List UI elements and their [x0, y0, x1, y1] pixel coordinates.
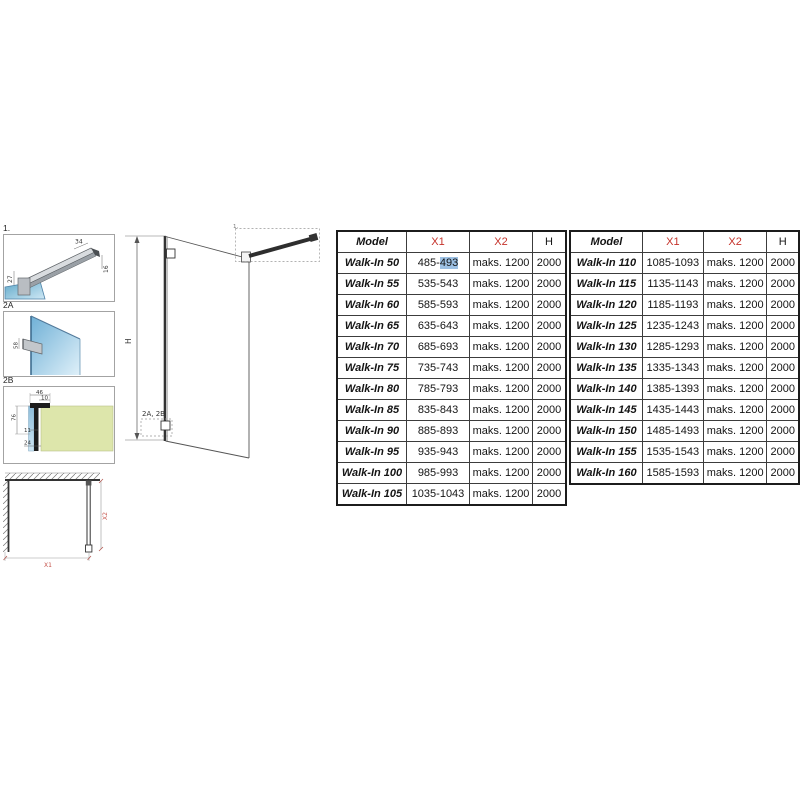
cell-x2: maks. 1200 — [703, 274, 767, 295]
cell-model: Walk-In 140 — [570, 379, 642, 400]
dim-10: 10 — [41, 396, 48, 402]
cell-x2: maks. 1200 — [470, 253, 533, 274]
cell-x2: maks. 1200 — [703, 337, 767, 358]
support-bar-drawing: 34 16 27 — [4, 235, 114, 301]
cell-model: Walk-In 120 — [570, 295, 642, 316]
glass-panel-plan — [87, 481, 90, 547]
cell-model: Walk-In 75 — [337, 358, 407, 379]
dim-34: 34 — [75, 239, 83, 246]
cell-h: 2000 — [533, 379, 567, 400]
spec-row: Walk-In 80785-793maks. 12002000 — [337, 379, 566, 400]
top-bracket — [167, 249, 176, 258]
column-header-model: Model — [337, 231, 407, 253]
cell-model: Walk-In 60 — [337, 295, 407, 316]
spec-row: Walk-In 50485-493maks. 12002000 — [337, 253, 566, 274]
cell-model: Walk-In 65 — [337, 316, 407, 337]
cell-x2: maks. 1200 — [470, 400, 533, 421]
cell-model: Walk-In 70 — [337, 337, 407, 358]
column-header-h: H — [767, 231, 799, 253]
cell-x1: 1185-1193 — [642, 295, 703, 316]
cell-x2: maks. 1200 — [470, 358, 533, 379]
cell-x2: maks. 1200 — [470, 484, 533, 506]
cell-x1: 685-693 — [407, 337, 470, 358]
cell-x1: 1285-1293 — [642, 337, 703, 358]
cell-x1: 1385-1393 — [642, 379, 703, 400]
cell-model: Walk-In 130 — [570, 337, 642, 358]
column-header-x1: X1 — [642, 231, 703, 253]
cell-h: 2000 — [767, 337, 799, 358]
spec-row: Walk-In 1451435-1443maks. 12002000 — [570, 400, 799, 421]
arrow-down — [135, 433, 140, 440]
cell-x2: maks. 1200 — [470, 442, 533, 463]
spec-row: Walk-In 1301285-1293maks. 12002000 — [570, 337, 799, 358]
cell-x1: 1235-1243 — [642, 316, 703, 337]
dim-24: 24 — [24, 441, 31, 447]
cell-x1: 1585-1593 — [642, 463, 703, 485]
cell-h: 2000 — [767, 421, 799, 442]
detail-2a-box: 58 — [3, 311, 115, 377]
cell-x1: 485-493 — [407, 253, 470, 274]
cell-h: 2000 — [767, 358, 799, 379]
cell-x1: 535-543 — [407, 274, 470, 295]
cell-x1: 735-743 — [407, 358, 470, 379]
elevation-drawing: H 1. 2A, 2B — [120, 222, 332, 472]
spec-row: Walk-In 1051035-1043maks. 12002000 — [337, 484, 566, 506]
height-dim-label: H — [124, 338, 133, 344]
spec-row: Walk-In 1401385-1393maks. 12002000 — [570, 379, 799, 400]
cell-model: Walk-In 155 — [570, 442, 642, 463]
detail-2b-box: 46 10 76 11 24 — [3, 386, 115, 464]
cell-x1: 1135-1143 — [642, 274, 703, 295]
cell-x1: 1335-1343 — [642, 358, 703, 379]
cell-model: Walk-In 105 — [337, 484, 407, 506]
spec-row: Walk-In 1101085-1093maks. 12002000 — [570, 253, 799, 274]
spec-row: Walk-In 1351335-1343maks. 12002000 — [570, 358, 799, 379]
cell-x2: maks. 1200 — [703, 358, 767, 379]
detail-2b-label: 2B — [3, 376, 115, 385]
cell-x2: maks. 1200 — [470, 337, 533, 358]
cell-h: 2000 — [533, 358, 567, 379]
cell-x1: 885-893 — [407, 421, 470, 442]
cell-model: Walk-In 115 — [570, 274, 642, 295]
cell-x1: 785-793 — [407, 379, 470, 400]
cell-x1: 1435-1443 — [642, 400, 703, 421]
spec-row: Walk-In 1551535-1543maks. 12002000 — [570, 442, 799, 463]
cell-h: 2000 — [767, 463, 799, 485]
cell-x1: 985-993 — [407, 463, 470, 484]
cell-x2: maks. 1200 — [703, 442, 767, 463]
cell-model: Walk-In 145 — [570, 400, 642, 421]
detail-1-box: 34 16 27 — [3, 234, 115, 302]
wall-profile-plan — [86, 481, 92, 486]
column-header-model: Model — [570, 231, 642, 253]
cell-h: 2000 — [767, 400, 799, 421]
cell-h: 2000 — [533, 295, 567, 316]
wall-section — [41, 406, 113, 451]
spec-row: Walk-In 65635-643maks. 12002000 — [337, 316, 566, 337]
spec-row: Walk-In 1251235-1243maks. 12002000 — [570, 316, 799, 337]
top-wall-hatch — [5, 473, 100, 480]
cell-h: 2000 — [767, 316, 799, 337]
plan-view-drawing: X2 X1 — [3, 468, 118, 576]
cell-model: Walk-In 100 — [337, 463, 407, 484]
end-fitting-plan — [86, 545, 92, 552]
cell-x1: 635-643 — [407, 316, 470, 337]
cell-model: Walk-In 125 — [570, 316, 642, 337]
profile-top — [30, 403, 50, 408]
detail-2a-label: 2A — [3, 301, 115, 310]
profile-body — [34, 403, 39, 451]
cell-x1: 585-593 — [407, 295, 470, 316]
cell-x2: maks. 1200 — [703, 463, 767, 485]
cell-model: Walk-In 110 — [570, 253, 642, 274]
detail-1-label: 1. — [3, 224, 115, 233]
highlighted-text: 493 — [440, 257, 458, 269]
cell-h: 2000 — [533, 484, 567, 506]
detail-1-drawing: 1. 34 16 27 — [3, 224, 115, 302]
cell-model: Walk-In 50 — [337, 253, 407, 274]
cell-h: 2000 — [533, 253, 567, 274]
detail-2a-drawing: 2A 58 — [3, 301, 115, 377]
cell-h: 2000 — [767, 295, 799, 316]
left-wall-hatch — [3, 480, 8, 552]
spec-row: Walk-In 60585-593maks. 12002000 — [337, 295, 566, 316]
callout-top-label: 1. — [233, 224, 238, 230]
cell-model: Walk-In 80 — [337, 379, 407, 400]
cell-x1: 835-843 — [407, 400, 470, 421]
cell-h: 2000 — [767, 442, 799, 463]
cell-x2: maks. 1200 — [703, 400, 767, 421]
cell-x2: maks. 1200 — [703, 379, 767, 400]
column-header-x2: X2 — [470, 231, 533, 253]
cell-x2: maks. 1200 — [470, 295, 533, 316]
bar-glass-mount — [18, 278, 30, 295]
spec-row: Walk-In 1201185-1193maks. 12002000 — [570, 295, 799, 316]
cell-x1: 1085-1093 — [642, 253, 703, 274]
glass-bottom-edge — [166, 441, 250, 458]
cell-x1: 1535-1543 — [642, 442, 703, 463]
spec-table-left: ModelX1X2HWalk-In 50485-493maks. 1200200… — [336, 230, 567, 506]
cell-x2: maks. 1200 — [470, 316, 533, 337]
glass-bracket-drawing: 58 — [4, 312, 114, 376]
support-bar — [249, 239, 312, 257]
cell-model: Walk-In 135 — [570, 358, 642, 379]
callout-bottom-label: 2A, 2B — [142, 410, 165, 418]
cell-x2: maks. 1200 — [703, 295, 767, 316]
cell-h: 2000 — [533, 421, 567, 442]
bar-mount — [242, 252, 251, 262]
cell-x1: 1485-1493 — [642, 421, 703, 442]
cell-h: 2000 — [533, 463, 567, 484]
cell-model: Walk-In 85 — [337, 400, 407, 421]
bottom-bracket — [161, 421, 170, 430]
cell-x2: maks. 1200 — [470, 421, 533, 442]
cell-h: 2000 — [533, 274, 567, 295]
column-header-x2: X2 — [703, 231, 767, 253]
cell-x2: maks. 1200 — [470, 274, 533, 295]
cell-h: 2000 — [767, 274, 799, 295]
plan-x2-label: X2 — [102, 512, 109, 520]
spec-row: Walk-In 55535-543maks. 12002000 — [337, 274, 566, 295]
spec-row: Walk-In 1601585-1593maks. 12002000 — [570, 463, 799, 485]
column-header-h: H — [533, 231, 567, 253]
cell-h: 2000 — [767, 379, 799, 400]
cell-h: 2000 — [533, 400, 567, 421]
cell-model: Walk-In 90 — [337, 421, 407, 442]
arrow-up — [135, 236, 140, 243]
detail-2b-drawing: 2B 46 10 — [3, 376, 115, 464]
spec-row: Walk-In 95935-943maks. 12002000 — [337, 442, 566, 463]
cell-model: Walk-In 55 — [337, 274, 407, 295]
support-bar-front-face — [24, 252, 96, 290]
cell-x2: maks. 1200 — [703, 316, 767, 337]
spec-table-right: ModelX1X2HWalk-In 1101085-1093maks. 1200… — [569, 230, 800, 485]
cell-x1: 935-943 — [407, 442, 470, 463]
cell-x2: maks. 1200 — [703, 253, 767, 274]
cell-h: 2000 — [533, 442, 567, 463]
spec-row: Walk-In 1501485-1493maks. 12002000 — [570, 421, 799, 442]
cell-model: Walk-In 160 — [570, 463, 642, 485]
spec-row: Walk-In 90885-893maks. 12002000 — [337, 421, 566, 442]
cell-model: Walk-In 95 — [337, 442, 407, 463]
spec-sheet-page: 1. 34 16 27 — [0, 0, 800, 800]
cell-x2: maks. 1200 — [703, 421, 767, 442]
plan-x1-label: X1 — [44, 562, 52, 569]
support-bar-top-face — [20, 248, 95, 286]
cell-x2: maks. 1200 — [470, 379, 533, 400]
cell-x2: maks. 1200 — [470, 463, 533, 484]
spec-row: Walk-In 85835-843maks. 12002000 — [337, 400, 566, 421]
dim-76: 76 — [12, 414, 18, 421]
column-header-x1: X1 — [407, 231, 470, 253]
dim-16: 16 — [103, 265, 110, 273]
glass-top-edge — [166, 237, 247, 259]
cell-h: 2000 — [767, 253, 799, 274]
wall-profile-section-drawing: 46 10 76 11 24 — [4, 387, 114, 463]
spec-row: Walk-In 1151135-1143maks. 12002000 — [570, 274, 799, 295]
spec-row: Walk-In 75735-743maks. 12002000 — [337, 358, 566, 379]
cell-model: Walk-In 150 — [570, 421, 642, 442]
cell-h: 2000 — [533, 316, 567, 337]
cell-x1: 1035-1043 — [407, 484, 470, 506]
cell-h: 2000 — [533, 337, 567, 358]
spec-row: Walk-In 100985-993maks. 12002000 — [337, 463, 566, 484]
dim-58: 58 — [14, 342, 20, 349]
dim-11: 11 — [24, 428, 31, 434]
dim-27: 27 — [7, 275, 14, 283]
spec-row: Walk-In 70685-693maks. 12002000 — [337, 337, 566, 358]
